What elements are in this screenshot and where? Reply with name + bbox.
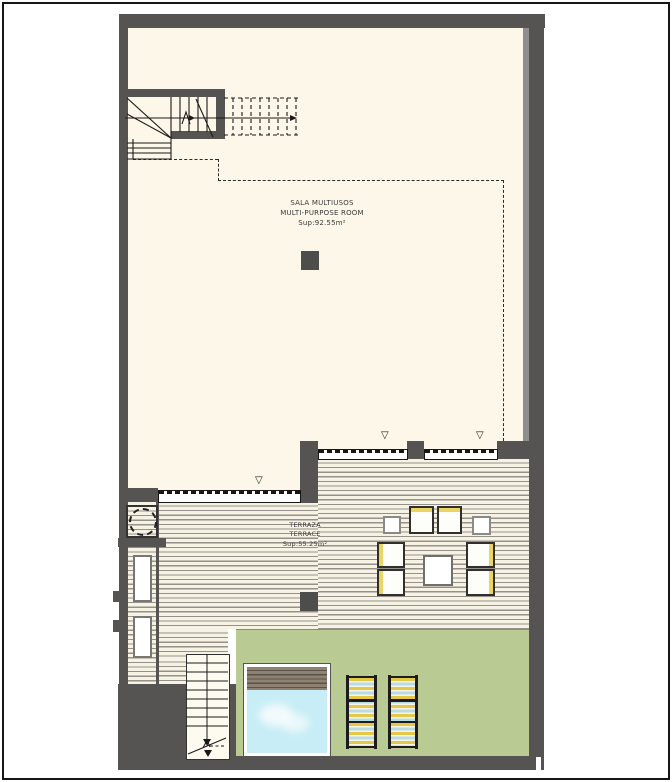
room-name-es: TERRAZA — [240, 521, 370, 530]
bottom-wall-gap — [536, 757, 541, 770]
lounger-crossbar — [349, 721, 374, 724]
right-wall-liner — [523, 28, 529, 442]
terrace-label: TERRAZA TERRACE Sup:55.25m² — [240, 521, 370, 549]
door-marker-icon: ▽ — [255, 476, 263, 486]
right-wall — [529, 14, 544, 770]
door-marker-icon: ▽ — [381, 431, 389, 441]
bottom-left-wall-mass — [118, 684, 186, 758]
room-area: Sup:92.55m² — [252, 218, 392, 228]
left-wall-pilaster — [113, 591, 119, 602]
chair — [466, 569, 495, 596]
side-table — [383, 516, 401, 534]
lounger-rail — [374, 675, 377, 749]
sun-lounger — [388, 676, 418, 748]
room-name-en: TERRACE — [240, 530, 370, 539]
lounger-rail — [388, 675, 391, 749]
tree-planter-circle-icon — [129, 508, 157, 536]
door-marker-icon: ▽ — [476, 431, 484, 441]
door-jamb-right — [497, 441, 529, 459]
ceiling-projection-line — [503, 180, 504, 441]
multi-purpose-room-floor-lower — [127, 449, 300, 490]
left-wall-pilaster — [113, 620, 119, 632]
lounger-rail — [346, 675, 349, 749]
chair — [409, 506, 434, 534]
sun-lounger — [346, 676, 377, 748]
lounger-crossbar — [349, 699, 374, 702]
door-jamb-left — [126, 488, 158, 502]
lounger-rail — [415, 675, 418, 749]
ceiling-projection-line — [218, 180, 504, 181]
room-name-en: MULTI-PURPOSE ROOM — [252, 208, 392, 218]
terrace-deck-bottom2 — [159, 658, 186, 685]
chair — [466, 542, 495, 568]
top-wall — [121, 14, 545, 28]
water-highlight — [281, 714, 309, 732]
door-jamb-center — [407, 441, 424, 459]
chair — [377, 569, 405, 596]
room-name-es: SALA MULTIUSOS — [252, 198, 392, 208]
sliding-door — [424, 449, 498, 460]
pool-water — [247, 690, 327, 753]
room-area: Sup:55.25m² — [240, 540, 370, 549]
lounger-crossbar — [391, 721, 415, 724]
planter — [133, 616, 152, 658]
chair — [437, 506, 462, 534]
sliding-door — [318, 449, 408, 460]
bottom-wall — [118, 756, 544, 770]
staircase-upper — [119, 89, 301, 165]
facade-jog-wall — [300, 441, 318, 503]
multi-purpose-room-label: SALA MULTIUSOS MULTI-PURPOSE ROOM Sup:92… — [252, 198, 392, 228]
dining-table — [423, 555, 453, 586]
lounger-crossbar — [391, 699, 415, 702]
column — [301, 251, 319, 270]
planter — [133, 555, 152, 602]
side-table — [472, 516, 491, 535]
sliding-door — [158, 490, 301, 503]
floor-plan-canvas: ▽ ▽ ▽ SALA MULTIUSOS MULTI-PURPOSE ROOM — [0, 0, 672, 782]
pool-steps — [247, 667, 327, 690]
column — [300, 592, 318, 611]
chair — [377, 542, 405, 568]
staircase-lower — [186, 654, 228, 758]
